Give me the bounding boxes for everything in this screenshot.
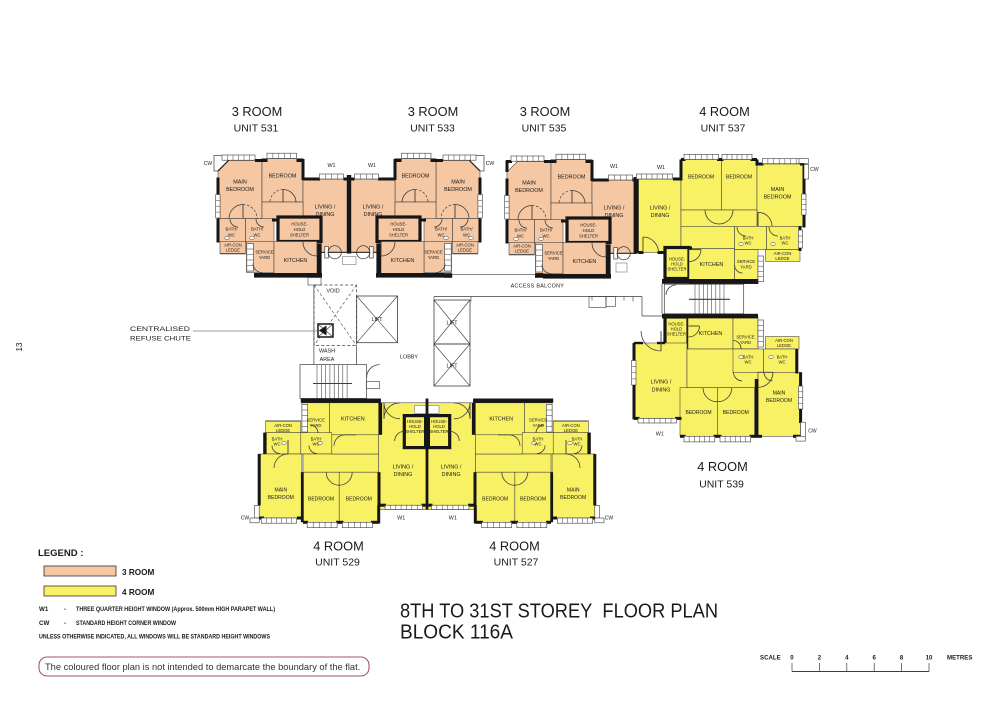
svg-text:WC: WC: [313, 442, 320, 447]
svg-text:METRES: METRES: [947, 655, 972, 662]
svg-text:W1: W1: [368, 163, 376, 169]
svg-text:3 ROOM: 3 ROOM: [122, 568, 154, 577]
svg-text:KITCHEN: KITCHEN: [391, 258, 415, 264]
svg-text:BATH/: BATH/: [435, 227, 448, 232]
svg-text:CW: CW: [605, 516, 614, 522]
svg-text:BEDROOM: BEDROOM: [269, 174, 297, 180]
svg-text:CW: CW: [204, 161, 213, 167]
svg-text:LIVING /: LIVING /: [650, 206, 671, 212]
svg-text:WC: WC: [782, 241, 789, 246]
svg-text:DINING: DINING: [364, 212, 383, 218]
svg-text:DINING: DINING: [652, 388, 671, 394]
svg-text:LEDGE: LEDGE: [458, 248, 472, 253]
svg-text:LEDGE: LEDGE: [226, 248, 240, 253]
svg-text:MAIN: MAIN: [233, 180, 247, 186]
svg-text:W1: W1: [449, 516, 457, 522]
svg-text:THREE QUARTER HEIGHT WINDOW (A: THREE QUARTER HEIGHT WINDOW (Approx. 500…: [76, 606, 275, 613]
svg-text:UNIT 535: UNIT 535: [522, 123, 567, 135]
svg-text:BEDROOM: BEDROOM: [346, 497, 372, 503]
svg-text:VOID: VOID: [326, 289, 339, 295]
svg-text:3 ROOM: 3 ROOM: [520, 104, 570, 119]
svg-text:LEDGE: LEDGE: [515, 249, 529, 254]
svg-text:KITCHEN: KITCHEN: [573, 259, 597, 265]
svg-text:WC: WC: [463, 232, 470, 237]
svg-text:LIVING /: LIVING /: [604, 206, 625, 212]
svg-text:SERVICE: SERVICE: [255, 250, 274, 255]
svg-text:10: 10: [926, 655, 933, 662]
svg-text:DINING: DINING: [651, 213, 670, 219]
svg-text:LOBBY: LOBBY: [400, 355, 418, 361]
svg-text:SHELTER: SHELTER: [579, 234, 598, 239]
svg-text:UNIT 533: UNIT 533: [410, 123, 455, 135]
svg-text:SHELTER: SHELTER: [667, 267, 686, 272]
svg-text:BATH/: BATH/: [540, 228, 553, 233]
svg-text:SERVICE: SERVICE: [424, 250, 443, 255]
svg-text:BEDROOM: BEDROOM: [226, 187, 254, 193]
svg-text:UNIT 531: UNIT 531: [234, 123, 279, 135]
svg-text:WC: WC: [745, 241, 752, 246]
svg-text:CENTRALISED: CENTRALISED: [130, 326, 191, 333]
svg-text:4 ROOM: 4 ROOM: [313, 539, 363, 554]
svg-text:The coloured floor plan is not: The coloured floor plan is not intended …: [45, 662, 360, 672]
svg-text:W1: W1: [656, 432, 664, 438]
svg-text:SERVICE: SERVICE: [736, 335, 755, 340]
svg-text:W1: W1: [39, 606, 49, 613]
svg-text:WC: WC: [274, 442, 281, 447]
svg-text:LIFT: LIFT: [446, 321, 458, 327]
svg-text:BATH/: BATH/: [514, 228, 527, 233]
svg-text:WC: WC: [574, 442, 581, 447]
svg-text:BEDROOM: BEDROOM: [520, 497, 546, 503]
svg-text:KITCHEN: KITCHEN: [700, 262, 724, 268]
svg-text:BEDROOM: BEDROOM: [308, 497, 334, 503]
svg-text:BATH/: BATH/: [460, 227, 473, 232]
svg-text:8TH TO 31ST STOREY FLOOR PLAN: 8TH TO 31ST STOREY FLOOR PLAN: [400, 601, 718, 623]
svg-text:LEDGE: LEDGE: [564, 428, 578, 433]
svg-text:YARD: YARD: [310, 423, 321, 428]
svg-text:HOUSE-: HOUSE-: [390, 222, 407, 227]
svg-text:MAIN: MAIN: [773, 391, 786, 397]
svg-text:KITCHEN: KITCHEN: [284, 258, 308, 264]
svg-text:LIFT: LIFT: [371, 317, 383, 323]
svg-text:LIFT: LIFT: [446, 364, 458, 370]
svg-text:YARD: YARD: [259, 255, 270, 260]
svg-text:WC: WC: [254, 232, 261, 237]
svg-text:YARD: YARD: [533, 423, 544, 428]
svg-text:W1: W1: [610, 164, 618, 170]
svg-text:SERVICE: SERVICE: [307, 418, 326, 423]
svg-text:WC: WC: [228, 232, 235, 237]
svg-text:SHELTER: SHELTER: [667, 332, 686, 337]
svg-text:WASH: WASH: [319, 349, 335, 355]
svg-text:BEDROOM: BEDROOM: [482, 497, 508, 503]
svg-text:BEDROOM: BEDROOM: [560, 495, 586, 501]
svg-text:BEDROOM: BEDROOM: [402, 174, 430, 180]
svg-text:4 ROOM: 4 ROOM: [699, 104, 749, 119]
svg-text:DINING: DINING: [442, 472, 461, 478]
svg-text:SHELTER: SHELTER: [389, 233, 408, 238]
svg-text:WC: WC: [745, 360, 752, 365]
svg-text:BEDROOM: BEDROOM: [726, 175, 752, 181]
svg-text:3 ROOM: 3 ROOM: [408, 104, 458, 119]
svg-text:BEDROOM: BEDROOM: [444, 187, 472, 193]
svg-text:CW: CW: [241, 516, 250, 522]
svg-text:LIVING /: LIVING /: [651, 380, 672, 386]
svg-text:WC: WC: [535, 442, 542, 447]
svg-text:LEDGE: LEDGE: [777, 343, 791, 348]
svg-text:W1: W1: [327, 163, 335, 169]
svg-text:MAIN: MAIN: [274, 488, 287, 494]
svg-text:MAIN: MAIN: [522, 181, 536, 187]
svg-text:UNIT 537: UNIT 537: [701, 123, 746, 135]
svg-text:HOUSE-: HOUSE-: [291, 222, 308, 227]
svg-text:YARD: YARD: [740, 340, 751, 345]
svg-text:CW: CW: [808, 429, 817, 435]
svg-text:MAIN: MAIN: [567, 488, 580, 494]
svg-text:LEDGE: LEDGE: [775, 256, 789, 261]
svg-text:UNLESS OTHERWISE INDICATED, AL: UNLESS OTHERWISE INDICATED, ALL WINDOWS …: [39, 634, 270, 641]
svg-text:KITCHEN: KITCHEN: [341, 417, 365, 423]
svg-text:4 ROOM: 4 ROOM: [697, 459, 747, 474]
svg-text:MAIN: MAIN: [451, 180, 465, 186]
svg-text:BEDROOM: BEDROOM: [268, 495, 294, 501]
svg-text:KITCHEN: KITCHEN: [489, 417, 513, 423]
svg-text:DINING: DINING: [393, 472, 412, 478]
svg-text:UNIT 529: UNIT 529: [315, 557, 360, 569]
svg-text:HOLD: HOLD: [393, 227, 405, 232]
svg-text:BEDROOM: BEDROOM: [688, 175, 714, 181]
svg-text:WC: WC: [543, 233, 550, 238]
svg-text:BATH/: BATH/: [251, 227, 264, 232]
svg-text:WC: WC: [517, 233, 524, 238]
svg-text:DINING: DINING: [316, 212, 335, 218]
svg-text:BEDROOM: BEDROOM: [515, 188, 543, 194]
svg-text:CW: CW: [486, 161, 495, 167]
svg-text:DINING: DINING: [605, 213, 624, 219]
svg-text:SHELTER: SHELTER: [405, 429, 424, 434]
svg-text:3 ROOM: 3 ROOM: [232, 104, 282, 119]
svg-text:BEDROOM: BEDROOM: [723, 410, 749, 416]
svg-text:UNIT 527: UNIT 527: [494, 557, 539, 569]
svg-text:BEDROOM: BEDROOM: [766, 398, 792, 404]
svg-text:W1: W1: [657, 165, 665, 171]
svg-text:HOLD: HOLD: [583, 228, 595, 233]
svg-text:SCALE: SCALE: [760, 655, 781, 662]
svg-text:6: 6: [873, 655, 877, 662]
svg-text:BLOCK 116A: BLOCK 116A: [400, 622, 514, 644]
svg-text:LIVING /: LIVING /: [393, 465, 414, 471]
svg-text:STANDARD HEIGHT CORNER WINDOW: STANDARD HEIGHT CORNER WINDOW: [76, 620, 176, 627]
svg-text:YARD: YARD: [428, 255, 439, 260]
svg-text:SERVICE: SERVICE: [737, 259, 756, 264]
svg-text:LIVING /: LIVING /: [315, 205, 336, 211]
svg-text:LIVING /: LIVING /: [441, 465, 462, 471]
svg-text:WC: WC: [438, 232, 445, 237]
svg-text:SHELTER: SHELTER: [290, 233, 309, 238]
svg-text:YARD: YARD: [548, 256, 559, 261]
svg-text:CW: CW: [810, 167, 819, 173]
svg-text:-: -: [64, 606, 66, 613]
svg-text:LEDGE: LEDGE: [276, 428, 290, 433]
svg-text:4 ROOM: 4 ROOM: [489, 539, 539, 554]
svg-text:HOUSE-: HOUSE-: [580, 223, 597, 228]
svg-text:KITCHEN: KITCHEN: [699, 331, 723, 337]
svg-text:W1: W1: [397, 516, 405, 522]
svg-text:REFUSE CHUTE: REFUSE CHUTE: [130, 336, 191, 343]
svg-text:AREA: AREA: [320, 357, 335, 363]
svg-text:BEDROOM: BEDROOM: [558, 175, 586, 181]
svg-text:ACCESS BALCONY: ACCESS BALCONY: [511, 284, 565, 290]
svg-text:SERVICE: SERVICE: [529, 418, 548, 423]
svg-text:BATH/: BATH/: [225, 227, 238, 232]
svg-text:LEGEND :: LEGEND :: [38, 548, 83, 559]
svg-text:UNIT 539: UNIT 539: [699, 479, 744, 491]
svg-text:13: 13: [15, 342, 24, 351]
svg-text:MAIN: MAIN: [771, 187, 785, 193]
svg-text:CW: CW: [39, 620, 49, 627]
svg-text:SHELTER: SHELTER: [430, 429, 449, 434]
svg-text:SERVICE: SERVICE: [544, 251, 563, 256]
svg-text:YARD: YARD: [740, 265, 751, 270]
svg-text:4 ROOM: 4 ROOM: [122, 588, 154, 597]
svg-text:2: 2: [818, 655, 822, 662]
svg-text:WC: WC: [779, 360, 786, 365]
svg-text:BEDROOM: BEDROOM: [685, 410, 711, 416]
svg-text:HOLD: HOLD: [294, 227, 306, 232]
svg-text:BEDROOM: BEDROOM: [764, 195, 792, 201]
svg-text:LIVING /: LIVING /: [363, 205, 384, 211]
svg-text:-: -: [64, 620, 66, 627]
